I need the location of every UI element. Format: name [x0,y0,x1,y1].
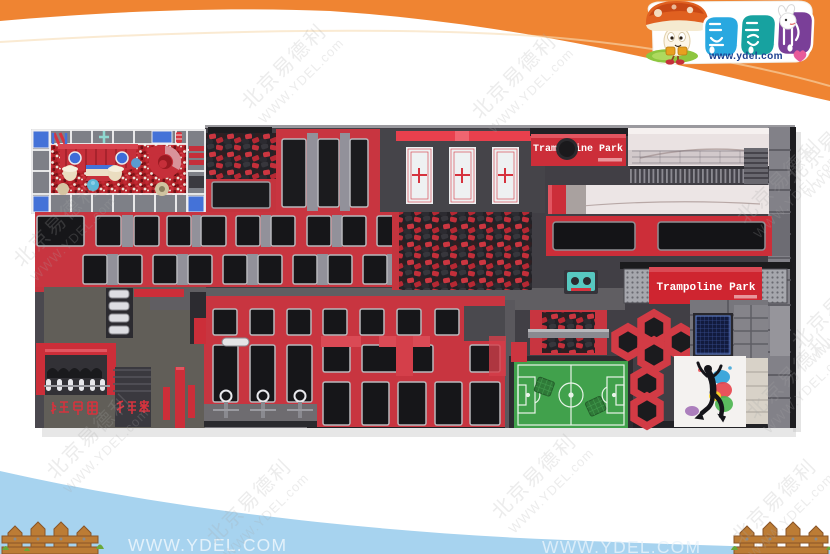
svg-text:www.ydel.com: www.ydel.com [708,51,783,62]
svg-text:WWW.YDEL.COM: WWW.YDEL.COM [542,537,701,554]
svg-text:Trampoline Park: Trampoline Park [656,282,755,294]
